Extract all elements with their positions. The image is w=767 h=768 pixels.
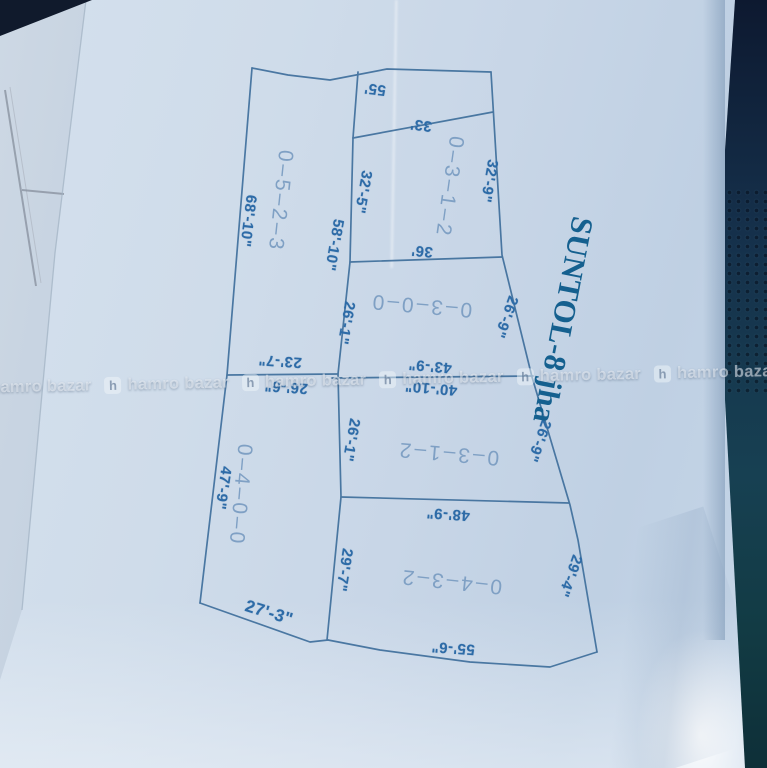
dimension-label: 55'-6"	[431, 638, 476, 658]
dimension-label: 26'-6"	[264, 377, 309, 397]
dimension-label: 23'-7"	[258, 351, 303, 371]
speaker-grille-texture	[725, 188, 767, 393]
under-sheet-lines	[5, 0, 86, 610]
boundary-48	[341, 497, 569, 503]
paper-edge-line	[22, 0, 86, 610]
photographed-survey-map: 55' 33' 32'-9" 32'-5" 58'-10" 36' 26'-9"…	[0, 0, 767, 768]
boundary-43-40	[332, 376, 533, 378]
dimension-label: 48'-9"	[426, 504, 471, 524]
dimension-label: 33'	[409, 115, 433, 135]
dimension-label: 36'	[410, 241, 433, 260]
dimension-label: 55'	[363, 79, 387, 99]
boundary-left-horizontal	[227, 374, 338, 375]
boundary-strip-left	[353, 72, 358, 138]
boundary-outer-top	[252, 68, 491, 80]
plot-map-drawing	[0, 0, 767, 768]
